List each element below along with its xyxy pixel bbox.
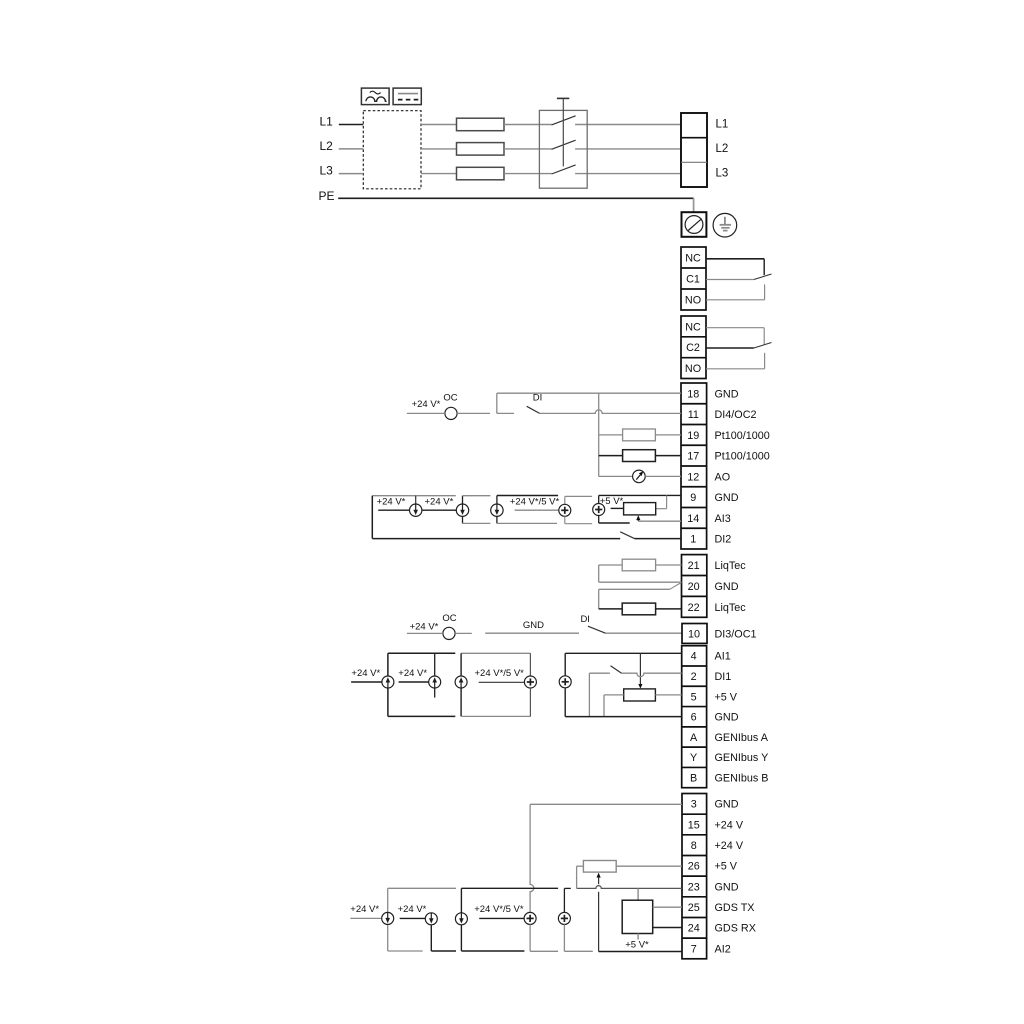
svg-text:GND: GND (715, 388, 739, 400)
svg-text:7: 7 (691, 943, 697, 955)
svg-text:B: B (690, 772, 697, 784)
svg-text:+24 V*: +24 V* (412, 399, 441, 410)
svg-text:+24 V: +24 V (715, 819, 744, 831)
svg-text:19: 19 (687, 430, 699, 442)
svg-text:NO: NO (685, 294, 701, 306)
svg-text:DI1: DI1 (715, 671, 732, 683)
svg-text:5: 5 (691, 691, 697, 703)
svg-text:C2: C2 (686, 342, 700, 354)
svg-text:AI1: AI1 (715, 651, 731, 663)
svg-text:+5 V*: +5 V* (600, 496, 624, 507)
svg-text:23: 23 (688, 881, 700, 893)
svg-text:26: 26 (688, 861, 700, 873)
svg-text:GND: GND (715, 799, 739, 811)
svg-text:PE: PE (319, 189, 335, 203)
svg-text:NC: NC (685, 321, 701, 333)
svg-text:15: 15 (688, 819, 700, 831)
svg-text:+24 V*: +24 V* (398, 668, 427, 679)
svg-text:24: 24 (688, 923, 700, 935)
svg-text:20: 20 (688, 581, 700, 593)
svg-text:1: 1 (690, 534, 696, 546)
svg-text:L1: L1 (716, 118, 729, 130)
svg-text:LiqTec: LiqTec (715, 602, 747, 614)
svg-text:OC: OC (443, 393, 457, 404)
svg-text:C1: C1 (686, 273, 700, 285)
svg-text:GDS TX: GDS TX (715, 902, 755, 914)
svg-text:GENIbus A: GENIbus A (715, 732, 769, 744)
svg-text:3: 3 (691, 799, 697, 811)
svg-text:11: 11 (688, 409, 699, 421)
svg-text:L3: L3 (716, 168, 729, 180)
svg-text:GDS RX: GDS RX (715, 923, 756, 935)
svg-text:+24 V*/5 V*: +24 V*/5 V* (475, 668, 525, 679)
svg-text:+24 V*: +24 V* (351, 668, 380, 679)
svg-text:18: 18 (687, 388, 699, 400)
svg-text:DI2: DI2 (715, 534, 732, 546)
svg-text:9: 9 (690, 492, 696, 504)
svg-text:GND: GND (715, 881, 739, 893)
svg-text:6: 6 (691, 712, 697, 724)
svg-text:+24 V*/5 V*: +24 V*/5 V* (474, 904, 524, 915)
svg-text:GND: GND (715, 492, 739, 504)
svg-text:NC: NC (685, 252, 701, 264)
svg-text:+24 V*: +24 V* (377, 497, 406, 508)
svg-text:+24 V*: +24 V* (350, 904, 379, 915)
svg-text:DI4/OC2: DI4/OC2 (715, 409, 757, 421)
svg-text:+24 V*: +24 V* (410, 621, 439, 632)
svg-text:+5 V*: +5 V* (625, 940, 649, 951)
svg-text:10: 10 (688, 628, 700, 640)
svg-text:NO: NO (685, 363, 701, 375)
svg-text:DI: DI (533, 393, 543, 404)
svg-text:+24 V*: +24 V* (398, 904, 427, 915)
svg-text:22: 22 (688, 602, 700, 614)
svg-text:2: 2 (691, 671, 697, 683)
svg-text:17: 17 (687, 451, 699, 463)
svg-text:AO: AO (715, 471, 731, 483)
svg-text:Pt100/1000: Pt100/1000 (715, 451, 770, 463)
svg-text:+5 V: +5 V (715, 861, 738, 873)
svg-text:4: 4 (691, 651, 697, 663)
svg-text:+24 V*: +24 V* (425, 497, 454, 508)
svg-text:L2: L2 (320, 139, 334, 153)
svg-text:GND: GND (715, 581, 739, 593)
svg-text:LiqTec: LiqTec (715, 560, 747, 572)
svg-text:A: A (690, 732, 698, 744)
svg-text:GND: GND (715, 712, 739, 724)
svg-text:Pt100/1000: Pt100/1000 (715, 430, 770, 442)
svg-text:L1: L1 (320, 114, 334, 128)
svg-text:OC: OC (442, 613, 456, 624)
svg-text:L2: L2 (716, 143, 729, 155)
svg-text:GND: GND (523, 620, 544, 631)
svg-text:L3: L3 (320, 164, 334, 178)
svg-text:Y: Y (690, 752, 697, 764)
svg-text:DI3/OC1: DI3/OC1 (715, 628, 757, 640)
svg-text:AI2: AI2 (715, 943, 731, 955)
svg-text:+24 V*/5 V*: +24 V*/5 V* (510, 496, 560, 507)
svg-text:14: 14 (687, 513, 699, 525)
svg-text:8: 8 (691, 840, 697, 852)
svg-text:12: 12 (687, 471, 699, 483)
svg-text:AI3: AI3 (715, 513, 731, 525)
svg-text:GENIbus B: GENIbus B (715, 772, 769, 784)
svg-text:DI: DI (580, 614, 590, 625)
svg-text:+5 V: +5 V (715, 691, 738, 703)
svg-text:+24 V: +24 V (715, 840, 744, 852)
svg-text:25: 25 (688, 902, 700, 914)
svg-text:21: 21 (688, 560, 700, 572)
svg-text:GENIbus Y: GENIbus Y (715, 752, 769, 764)
